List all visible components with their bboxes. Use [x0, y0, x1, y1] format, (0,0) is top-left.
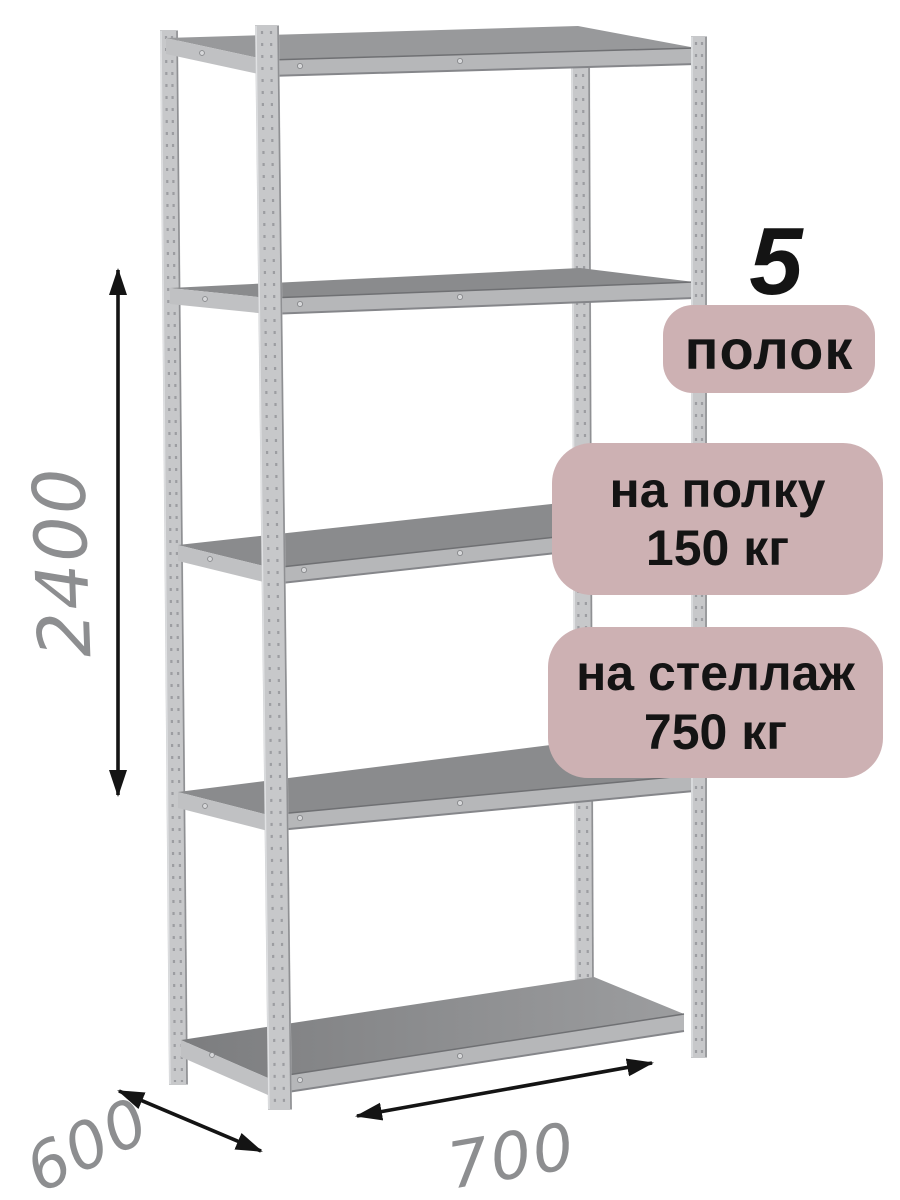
- shelf-load-badge: на полку 150 кг: [552, 443, 883, 595]
- shelf-load-line1: на полку: [610, 461, 826, 520]
- rack-load-line1: на стеллаж: [576, 644, 855, 703]
- shelf-count-label: полок: [685, 317, 854, 382]
- product-image: 2400 600 700 5 полок на полку 150 кг на …: [0, 0, 900, 1200]
- rack-load-badge: на стеллаж 750 кг: [548, 627, 883, 778]
- shelving-rack-diagram: [0, 0, 900, 1200]
- shelf-1: [166, 26, 696, 76]
- shelf-load-line2: 150 кг: [646, 519, 789, 578]
- rack-load-line2: 750 кг: [644, 703, 787, 762]
- shelf-5: [181, 977, 684, 1095]
- shelf-2: [170, 268, 694, 314]
- height-dimension-label: 2400: [17, 465, 108, 659]
- shelf-count-badge: полок: [663, 305, 875, 393]
- shelf-count-number: 5: [749, 207, 802, 317]
